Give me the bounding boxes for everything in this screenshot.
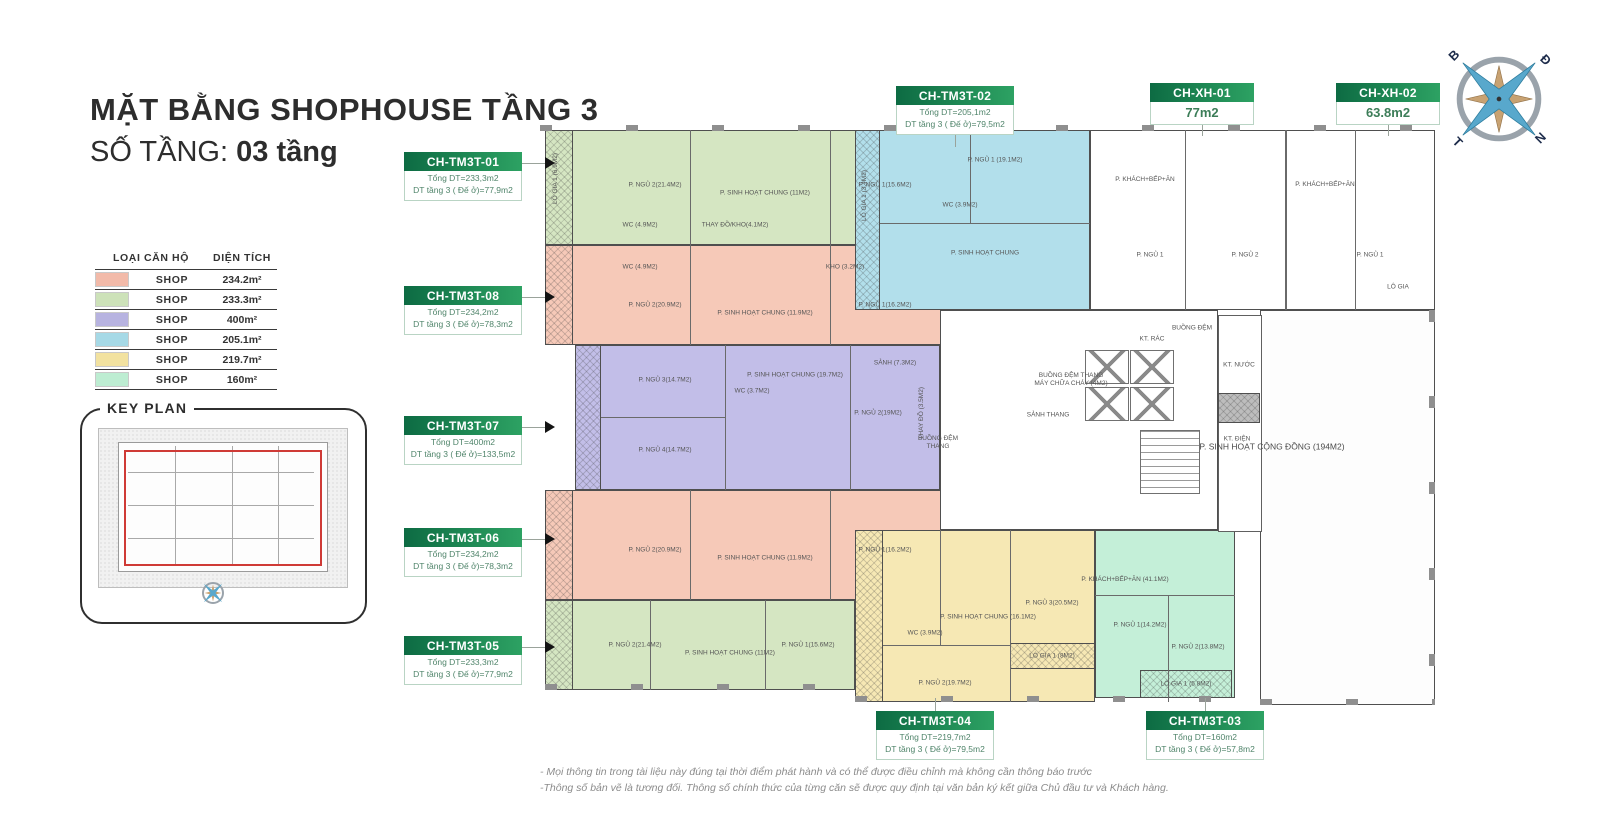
compass-east-label: Đ (1537, 51, 1554, 68)
loggia-strip (545, 490, 573, 600)
room-label: P. NGỦ 2(19.7M2) (919, 680, 972, 687)
room-label: P. SINH HOẠT CHUNG (16.1M2) (940, 614, 1036, 621)
legend-type: SHOP (135, 294, 209, 306)
unit-callout-ch-xh-01: CH-XH-01 77m2 (1150, 83, 1254, 125)
wall (601, 417, 725, 418)
room-label: P. NGỦ 3(20.5M2) (1026, 600, 1079, 607)
unit-floor3-area: DT tầng 3 ( Đế ở)=77,9m2 (405, 185, 521, 197)
legend-area: 205.1m² (209, 334, 275, 346)
wall (725, 345, 726, 490)
leader-line (522, 427, 545, 428)
key-plan-title: KEY PLAN (100, 400, 194, 416)
column-row (855, 696, 1235, 702)
legend-table: LOẠI CĂN HỘ DIỆN TÍCH SHOP234.2m² SHOP23… (95, 252, 277, 390)
room-label: WC (4.9M2) (622, 222, 657, 229)
wall (1285, 130, 1287, 310)
unit-area: 77m2 (1150, 102, 1254, 125)
legend-type: SHOP (135, 314, 209, 326)
legend-type: SHOP (135, 374, 209, 386)
leader-line (522, 539, 545, 540)
room-label: P. SINH HOẠT CHUNG (19.7M2) (747, 372, 843, 379)
room-label: P. SINH HOẠT CHUNG (11.9M2) (717, 310, 812, 317)
room-label: P. SINH HOẠT CHUNG (11M2) (720, 190, 810, 197)
arrow-icon (545, 421, 555, 433)
arrow-icon (545, 641, 555, 653)
wall (1355, 130, 1356, 310)
room-label: KHO (3.2M2) (826, 264, 864, 271)
arrow-icon (545, 291, 555, 303)
unit-callout-ch-tm3t-04: CH-TM3T-04 Tổng DT=219,7m2DT tầng 3 ( Đế… (876, 711, 994, 760)
tech-shaft-hatch (1218, 393, 1260, 423)
leader-line (522, 647, 545, 648)
unit-total-area: Tổng DT=160m2 (1147, 732, 1263, 744)
room-label: P. NGỦ 1 (1357, 252, 1384, 259)
unit-total-area: Tổng DT=234,2m2 (405, 549, 521, 561)
legend-row: SHOP233.3m² (95, 289, 277, 309)
unit-callout-ch-tm3t-07: CH-TM3T-07 Tổng DT=400m2DT tầng 3 ( Đế ở… (404, 416, 522, 465)
column-row (1260, 699, 1435, 705)
community-room-area (1260, 310, 1435, 705)
unit-callout-ch-xh-02: CH-XH-02 63.8m2 (1336, 83, 1440, 125)
room-label: P. NGỦ 2(20.9M2) (629, 547, 682, 554)
legend-area: 219.7m² (209, 354, 275, 366)
legend-area: 160m² (209, 374, 275, 386)
unit-id: CH-TM3T-02 (896, 86, 1014, 105)
compass-west-label: T (1450, 134, 1466, 150)
arrow-icon (545, 157, 555, 169)
legend-swatch (95, 332, 129, 347)
wall (880, 223, 1090, 224)
room-label: P. NGỦ 2(21.4M2) (629, 182, 682, 189)
room-label: P. SINH HOẠT CHUNG (11.9M2) (717, 555, 812, 562)
legend-swatch (95, 292, 129, 307)
room-label: WC (3.9M2) (907, 630, 942, 637)
unit-floor3-area: DT tầng 3 ( Đế ở)=57,8m2 (1147, 744, 1263, 756)
room-label: P. NGỦ 1(15.6M2) (782, 642, 835, 649)
unit-ch-xh-area (1090, 130, 1435, 310)
key-plan-compass-icon (198, 578, 228, 608)
unit-floor3-area: DT tầng 3 ( Đế ở)=79,5m2 (877, 744, 993, 756)
key-plan-highlight-rect (124, 450, 322, 566)
room-label: KT. NƯỚC (1223, 362, 1255, 369)
unit-total-area: Tổng DT=234,2m2 (405, 307, 521, 319)
legend-swatch (95, 352, 129, 367)
unit-total-area: Tổng DT=233,3m2 (405, 657, 521, 669)
room-label: P. NGỦ 1(14.2M2) (1114, 622, 1167, 629)
unit-callout-ch-tm3t-02: CH-TM3T-02 Tổng DT=205,1m2DT tầng 3 ( Đế… (896, 86, 1014, 135)
room-label: P. KHÁCH+BẾP+ĂN (1105, 176, 1185, 184)
legend-area: 400m² (209, 314, 275, 326)
room-label: P. NGỦ 1 (1137, 252, 1164, 259)
loggia-strip (855, 530, 883, 702)
unit-callout-ch-tm3t-03: CH-TM3T-03 Tổng DT=160m2DT tầng 3 ( Đế ở… (1146, 711, 1264, 760)
room-label: P. NGỦ 4(14.7M2) (639, 447, 692, 454)
room-label: LÔ GIA (1387, 284, 1409, 291)
room-label: WC (4.9M2) (622, 264, 657, 271)
unit-total-area: Tổng DT=233,3m2 (405, 173, 521, 185)
unit-id: CH-TM3T-04 (876, 711, 994, 730)
wall (830, 245, 831, 345)
wall (883, 645, 1010, 646)
loggia-strip (545, 130, 573, 245)
unit-id: CH-TM3T-08 (404, 286, 522, 305)
unit-id: CH-TM3T-07 (404, 416, 522, 435)
unit-id: CH-XH-01 (1150, 83, 1254, 102)
wall (850, 345, 851, 490)
room-label: WC (3.7M2) (734, 388, 769, 395)
compass-north-label: B (1445, 47, 1462, 64)
legend-type: SHOP (135, 354, 209, 366)
unit-id: CH-TM3T-03 (1146, 711, 1264, 730)
wall (830, 490, 831, 600)
room-label: P. SINH HOẠT CHUNG (11M2) (685, 650, 775, 657)
legend-swatch (95, 372, 129, 387)
room-label: P. NGỦ 1(16.2M2) (859, 302, 912, 309)
tech-shaft (1218, 315, 1262, 532)
room-label: P. NGỦ 1(16.2M2) (859, 547, 912, 554)
unit-id: CH-XH-02 (1336, 83, 1440, 102)
room-label: P. NGỦ 2 (1232, 252, 1259, 259)
room-label: BUỒNG ĐỆM THANG MÁY CHỮA CHÁY (4M2) (1034, 372, 1108, 388)
legend-header-type: LOẠI CĂN HỘ (95, 252, 207, 264)
wall (690, 130, 691, 245)
wall (830, 130, 831, 245)
unit-floor3-area: DT tầng 3 ( Đế ở)=78,3m2 (405, 319, 521, 331)
footnote-line: - Mọi thông tin trong tài liệu này đúng … (540, 764, 1540, 780)
elevator (1130, 350, 1174, 384)
wall (970, 130, 971, 223)
room-label: P. KHÁCH+BẾP+ĂN (1285, 181, 1365, 189)
room-label: LÔ GIA 1 (3.4M2) (861, 170, 868, 221)
column-row (1429, 310, 1435, 705)
subtitle-label: SỐ TẦNG: (90, 136, 228, 168)
room-label: P. NGỦ 2(21.4M2) (609, 642, 662, 649)
subtitle-value: 03 tầng (236, 136, 338, 168)
leader-line (522, 163, 545, 164)
unit-floor3-area: DT tầng 3 ( Đế ở)=79,5m2 (897, 119, 1013, 131)
elevator (1130, 387, 1174, 421)
wall (690, 490, 691, 600)
unit-floor3-area: DT tầng 3 ( Đế ở)=78,3m2 (405, 561, 521, 573)
room-label: BUỒNG ĐỆM THANG (911, 435, 965, 451)
room-label: P. SINH HOẠT CHUNG (951, 250, 1019, 257)
wall (1185, 130, 1186, 310)
page-title: MẶT BẰNG SHOPHOUSE TẦNG 3 (90, 92, 599, 128)
wall (690, 245, 691, 345)
room-label: P. KHÁCH+BẾP+ĂN (41.1M2) (1080, 576, 1170, 584)
legend-row: SHOP234.2m² (95, 269, 277, 289)
unit-area: 63.8m2 (1336, 102, 1440, 125)
community-room-label: P. SINH HOẠT CỘNG ĐỒNG (194M2) (1197, 442, 1347, 453)
core-area (940, 310, 1218, 530)
room-label: P. NGỦ 2(19M2) (854, 410, 902, 417)
room-label: WC (3.9M2) (942, 202, 977, 209)
unit-callout-ch-tm3t-08: CH-TM3T-08 Tổng DT=234,2m2DT tầng 3 ( Đế… (404, 286, 522, 335)
legend-swatch (95, 312, 129, 327)
unit-callout-ch-tm3t-01: CH-TM3T-01 Tổng DT=233,3m2DT tầng 3 ( Đế… (404, 152, 522, 201)
room-label: THAY ĐỒ (3.5M2) (918, 387, 925, 440)
staircase (1140, 430, 1200, 494)
leader-line (935, 698, 936, 711)
room-label: P. NGỦ 3(14.7M2) (639, 377, 692, 384)
legend-type: SHOP (135, 274, 209, 286)
room-label: KT. RÁC (1140, 336, 1165, 343)
legend-row: SHOP205.1m² (95, 329, 277, 349)
room-label: BUỒNG ĐỆM (1172, 325, 1212, 332)
legend-row: SHOP400m² (95, 309, 277, 329)
floor-plan: P. NGỦ 2(21.4M2) P. SINH HOẠT CHUNG (11M… (540, 125, 1440, 710)
wall (940, 530, 941, 645)
unit-callout-ch-tm3t-05: CH-TM3T-05 Tổng DT=233,3m2DT tầng 3 ( Đế… (404, 636, 522, 685)
room-label: THAY ĐỒ/KHO(4.1M2) (702, 222, 769, 229)
room-label: LÔ GIA 1 (8M2) (1029, 653, 1075, 660)
unit-total-area: Tổng DT=400m2 (405, 437, 521, 449)
legend-area: 233.3m² (209, 294, 275, 306)
room-label: P. NGỦ 2(13.8M2) (1172, 644, 1225, 651)
column-row (545, 684, 855, 690)
compass-south-label: N (1532, 129, 1549, 146)
unit-total-area: Tổng DT=219,7m2 (877, 732, 993, 744)
room-label: SẢNH (7.3M2) (874, 360, 916, 367)
unit-floor3-area: DT tầng 3 ( Đế ở)=77,9m2 (405, 669, 521, 681)
unit-floor3-area: DT tầng 3 ( Đế ở)=133,5m2 (405, 449, 521, 461)
footnote-line: -Thông số bản vẽ là tương đối. Thông số … (540, 780, 1540, 796)
elevator (1085, 387, 1129, 421)
loggia-strip (575, 345, 601, 490)
legend-swatch (95, 272, 129, 287)
unit-callout-ch-tm3t-06: CH-TM3T-06 Tổng DT=234,2m2DT tầng 3 ( Đế… (404, 528, 522, 577)
unit-id: CH-TM3T-06 (404, 528, 522, 547)
leader-line (1205, 698, 1206, 711)
legend-header-area: DIỆN TÍCH (207, 252, 277, 264)
legend-header: LOẠI CĂN HỘ DIỆN TÍCH (95, 252, 277, 269)
leader-line (522, 297, 545, 298)
compass-rose-icon: B Đ N T (1440, 40, 1558, 158)
room-label: SẢNH THANG (1027, 412, 1070, 419)
wall (1095, 595, 1235, 596)
wall (765, 600, 766, 690)
arrow-icon (545, 533, 555, 545)
legend-row: SHOP219.7m² (95, 349, 277, 369)
legend-row: SHOP160m² (95, 369, 277, 390)
page-subtitle: SỐ TẦNG: 03 tầng (90, 136, 338, 169)
unit-total-area: Tổng DT=205,1m2 (897, 107, 1013, 119)
room-label: LÔ GIA 1 (5.8M2) (1161, 681, 1212, 688)
footnotes: - Mọi thông tin trong tài liệu này đúng … (540, 764, 1540, 797)
legend-type: SHOP (135, 334, 209, 346)
room-label: P. NGỦ 2(20.9M2) (629, 302, 682, 309)
legend-area: 234.2m² (209, 274, 275, 286)
unit-id: CH-TM3T-05 (404, 636, 522, 655)
unit-id: CH-TM3T-01 (404, 152, 522, 171)
room-label: P. NGỦ 1 (19.1M2) (968, 157, 1023, 164)
